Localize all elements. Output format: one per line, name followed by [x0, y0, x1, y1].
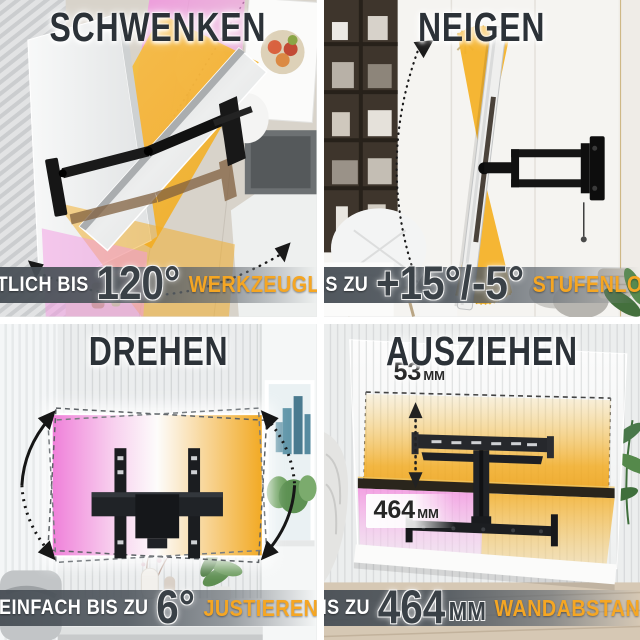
panel-title: SCHWENKEN [0, 4, 317, 51]
measurement-unit: MM [417, 506, 439, 521]
panel-ausziehen: 53 MM 464 MM AUSZIEHEN BIS ZU 464 MM WAN… [324, 324, 640, 640]
panel-neigen: NEIGEN BIS ZU +15°/-5° STUFENLOS [324, 0, 640, 317]
caption-value: +15°/-5° [376, 259, 524, 306]
caption-keyword: WERKZEUGLOS [189, 271, 316, 298]
caption-bar: SEITLICH BIS 120° WERKZEUGLOS [0, 267, 317, 303]
caption-value: 6° [156, 583, 195, 630]
caption-value: 464 [378, 583, 445, 630]
caption-prefix: BIS ZU [324, 273, 369, 297]
caption-keyword: STUFENLOS [533, 271, 640, 298]
panel-title-text: NEIGEN [418, 4, 545, 51]
measurement-464mm: 464 MM [366, 494, 455, 528]
panel-title-text: DREHEN [88, 328, 228, 375]
caption-bar: EINFACH BIS ZU 6° JUSTIEREN [0, 590, 317, 626]
panel-title: NEIGEN [324, 4, 640, 51]
caption-value: 120° [97, 259, 181, 306]
panel-drehen: DREHEN EINFACH BIS ZU 6° JUSTIEREN [0, 324, 317, 640]
caption-prefix: BIS ZU [324, 596, 371, 620]
panel-schwenken: SCHWENKEN SEITLICH BIS 120° WERKZEUGLOS [0, 0, 317, 317]
caption-keyword: WANDABSTAND [495, 595, 640, 622]
caption-bar: BIS ZU 464 MM WANDABSTAND [324, 590, 640, 626]
caption-bar: BIS ZU +15°/-5° STUFENLOS [324, 267, 640, 303]
panel-title: DREHEN [0, 328, 317, 375]
panel-title-text: SCHWENKEN [50, 4, 267, 51]
caption-keyword: JUSTIEREN [203, 595, 316, 622]
caption-prefix: EINFACH BIS ZU [0, 596, 148, 620]
measurement-value: 464 [374, 496, 416, 525]
product-feature-poster: SCHWENKEN SEITLICH BIS 120° WERKZEUGLOS [0, 0, 640, 640]
panel-title: AUSZIEHEN [324, 328, 640, 375]
caption-prefix: SEITLICH BIS [0, 273, 89, 297]
caption-unit: MM [449, 596, 486, 627]
panel-title-text: AUSZIEHEN [386, 328, 578, 375]
